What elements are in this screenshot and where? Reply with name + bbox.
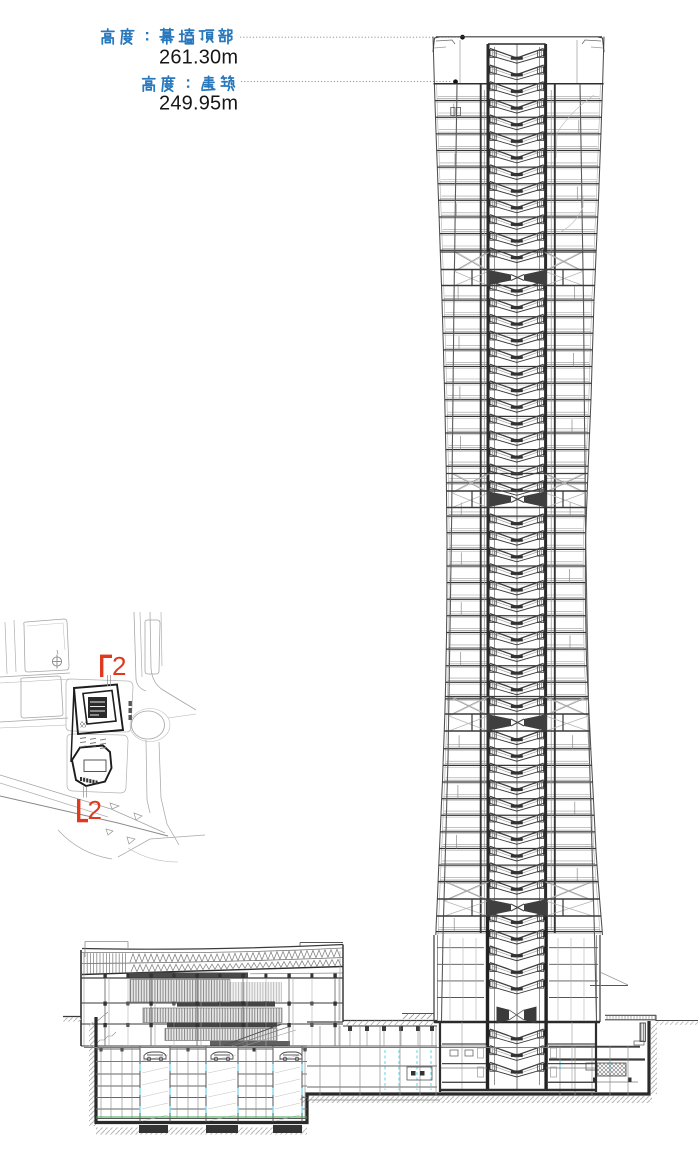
svg-text:2: 2 — [112, 651, 126, 681]
svg-text:249.95m: 249.95m — [159, 93, 238, 115]
svg-text:2: 2 — [88, 795, 102, 825]
svg-text:261.30m: 261.30m — [159, 47, 238, 69]
